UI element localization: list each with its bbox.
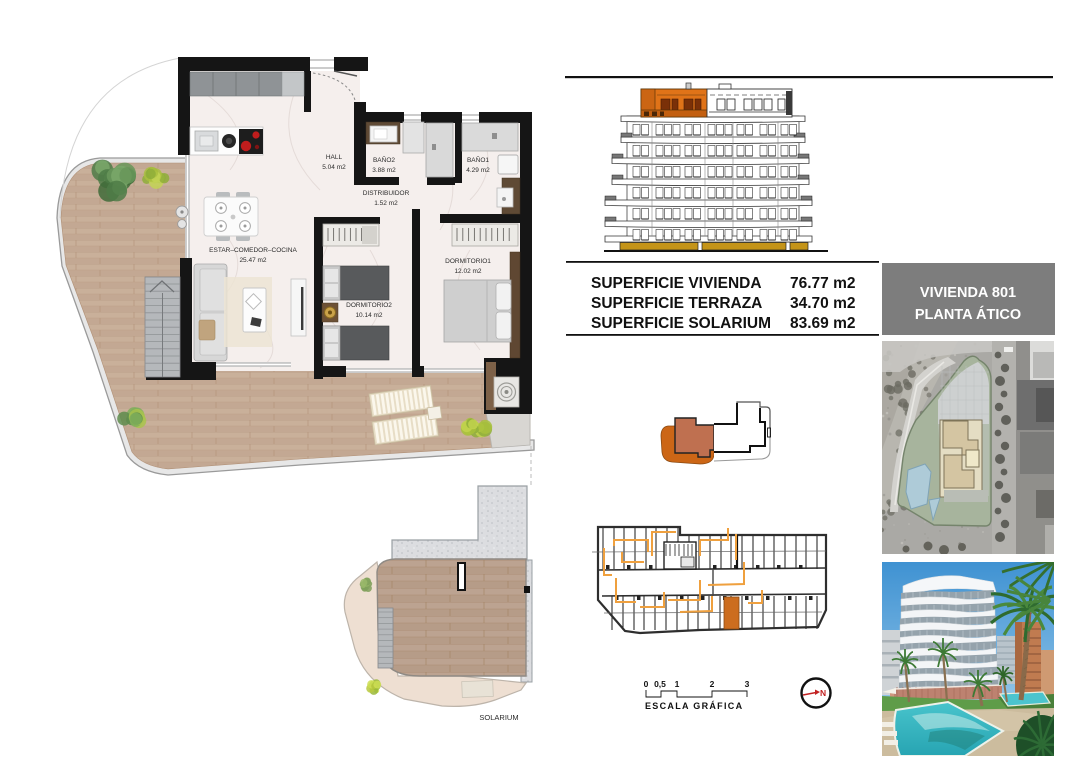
svg-text:N: N	[820, 688, 826, 698]
svg-text:DORMITORIO2: DORMITORIO2	[346, 302, 392, 309]
svg-text:BAÑO1: BAÑO1	[467, 155, 489, 164]
svg-text:1.52 m2: 1.52 m2	[374, 200, 398, 207]
svg-text:76.77 m2: 76.77 m2	[790, 275, 856, 292]
svg-text:SOLARIUM: SOLARIUM	[479, 713, 518, 722]
svg-text:3.88 m2: 3.88 m2	[372, 167, 396, 174]
svg-text:HALL: HALL	[326, 154, 343, 161]
svg-text:34.70 m2: 34.70 m2	[790, 295, 856, 312]
svg-text:5.04 m2: 5.04 m2	[322, 164, 346, 171]
svg-text:0,5: 0,5	[654, 679, 666, 689]
svg-text:12.02 m2: 12.02 m2	[454, 268, 481, 275]
svg-text:SUPERFICIE VIVIENDA: SUPERFICIE VIVIENDA	[591, 275, 762, 292]
svg-text:83.69 m2: 83.69 m2	[790, 315, 856, 332]
svg-text:0: 0	[644, 679, 649, 689]
svg-text:VIVIENDA 801: VIVIENDA 801	[920, 285, 1016, 301]
svg-text:BAÑO2: BAÑO2	[373, 155, 395, 164]
svg-text:10.14 m2: 10.14 m2	[355, 312, 382, 319]
svg-text:ESTAR–COMEDOR–COCINA: ESTAR–COMEDOR–COCINA	[209, 247, 297, 254]
svg-text:DORMITORIO1: DORMITORIO1	[445, 258, 491, 265]
svg-text:25.47 m2: 25.47 m2	[239, 257, 266, 264]
svg-text:2: 2	[710, 679, 715, 689]
svg-text:1: 1	[675, 679, 680, 689]
svg-text:3: 3	[745, 679, 750, 689]
svg-text:PLANTA ÁTICO: PLANTA ÁTICO	[915, 306, 1021, 323]
svg-text:4.29 m2: 4.29 m2	[466, 167, 490, 174]
svg-text:SUPERFICIE TERRAZA: SUPERFICIE TERRAZA	[591, 295, 762, 312]
svg-text:SUPERFICIE SOLARIUM: SUPERFICIE SOLARIUM	[591, 315, 771, 332]
svg-text:ESCALA GRÁFICA: ESCALA GRÁFICA	[645, 701, 743, 711]
svg-text:DISTRIBUIDOR: DISTRIBUIDOR	[363, 190, 410, 197]
